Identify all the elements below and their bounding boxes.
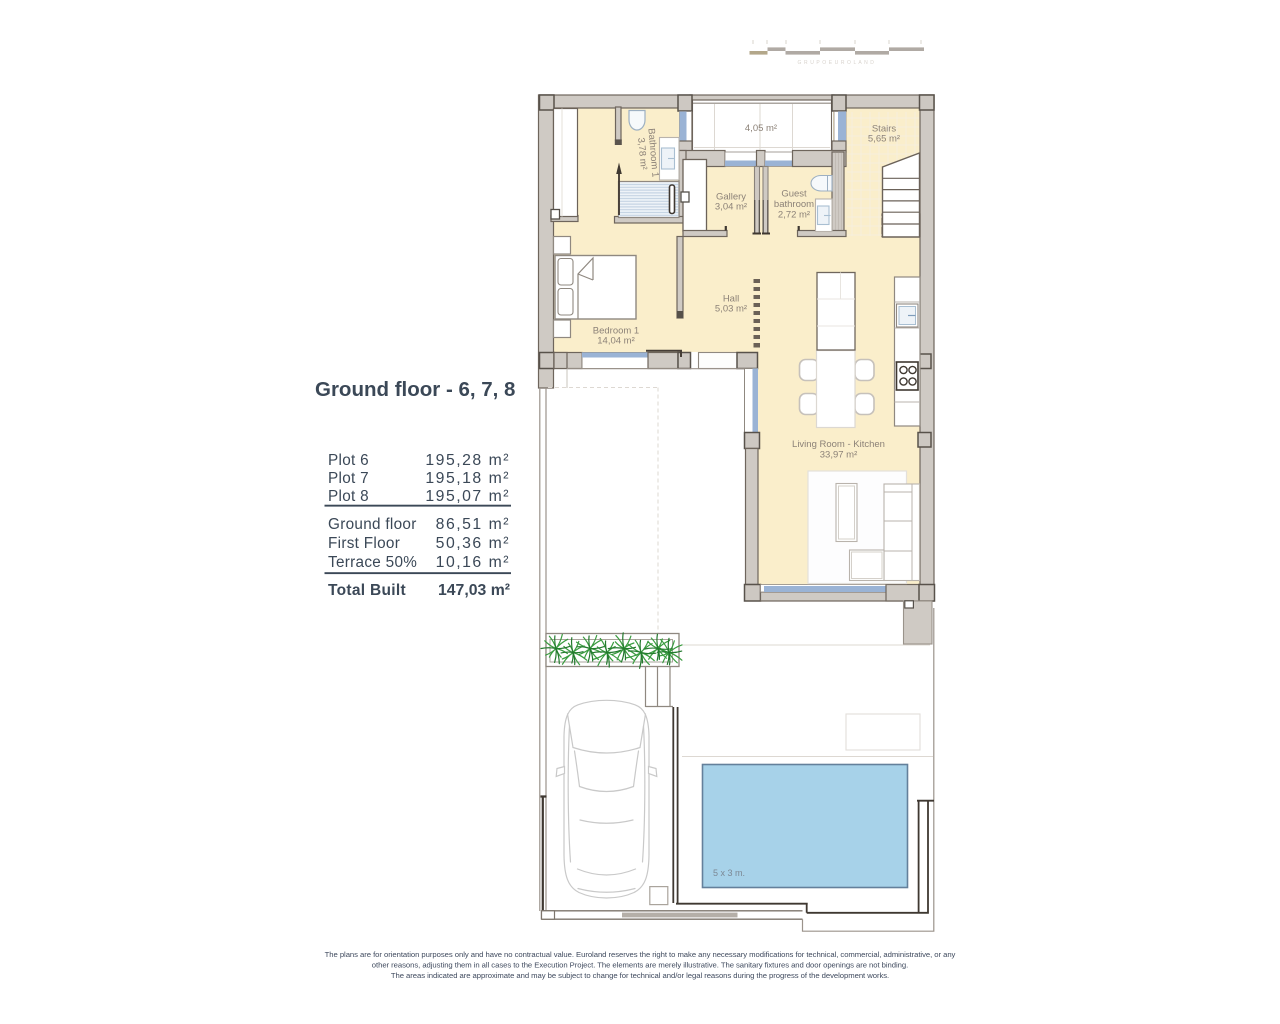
svg-text:Plot 6: Plot 6 <box>328 452 369 469</box>
svg-text:Ground floor - 6, 7, 8: Ground floor - 6, 7, 8 <box>315 378 515 401</box>
svg-text:14,04 m²: 14,04 m² <box>597 336 635 347</box>
svg-text:Plot 7: Plot 7 <box>328 470 369 487</box>
svg-text:33,97 m²: 33,97 m² <box>820 450 858 461</box>
svg-text:4,05 m²: 4,05 m² <box>745 123 777 134</box>
svg-text:3,04 m²: 3,04 m² <box>715 202 747 213</box>
svg-text:50,36 m²: 50,36 m² <box>436 535 510 552</box>
svg-text:195,18 m²: 195,18 m² <box>425 470 510 487</box>
svg-text:195,28 m²: 195,28 m² <box>425 452 510 469</box>
svg-text:Guest: Guest <box>781 189 807 200</box>
svg-text:86,51 m²: 86,51 m² <box>436 516 510 533</box>
svg-text:Living Room - Kitchen: Living Room - Kitchen <box>792 439 885 450</box>
svg-text:2,72 m²: 2,72 m² <box>778 210 810 221</box>
svg-text:5,65 m²: 5,65 m² <box>868 134 900 145</box>
svg-text:Total Built: Total Built <box>328 582 406 599</box>
svg-text:G R U P O E U R O L A N D: G R U P O E U R O L A N D <box>798 60 875 66</box>
svg-text:Ground floor: Ground floor <box>328 516 417 533</box>
svg-text:The areas indicated are approx: The areas indicated are approximate and … <box>391 971 889 980</box>
svg-text:bathroom: bathroom <box>774 199 814 210</box>
svg-text:5 x 3 m.: 5 x 3 m. <box>713 868 745 878</box>
svg-text:10,16 m²: 10,16 m² <box>436 554 510 571</box>
svg-text:The plans are for orientation: The plans are for orientation purposes o… <box>325 950 956 959</box>
svg-text:5,03 m²: 5,03 m² <box>715 304 747 315</box>
svg-text:195,07 m²: 195,07 m² <box>425 488 510 505</box>
svg-text:First Floor: First Floor <box>328 535 400 552</box>
svg-text:other reasons, adjusting them: other reasons, adjusting them in all cas… <box>372 961 908 970</box>
svg-text:147,03 m²: 147,03 m² <box>438 582 510 599</box>
svg-text:Terrace 50%: Terrace 50% <box>328 554 417 571</box>
svg-text:Plot 8: Plot 8 <box>328 488 369 505</box>
